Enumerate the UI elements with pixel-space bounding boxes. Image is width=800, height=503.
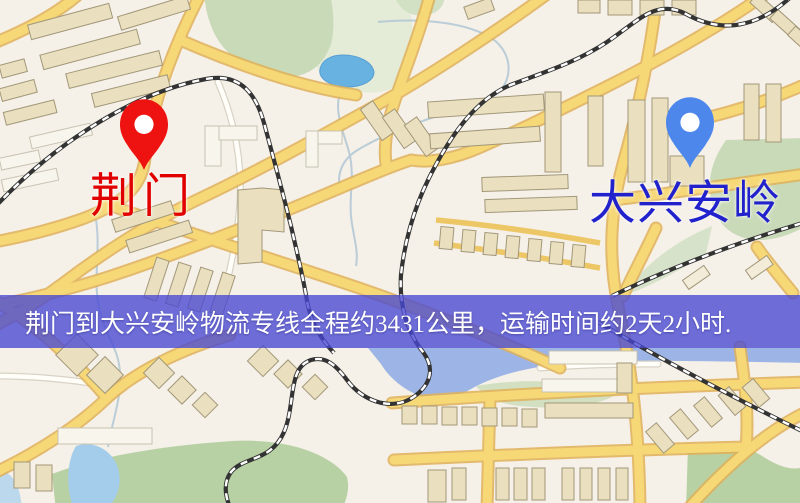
logistics-route-map: 荆门 大兴安岭 荆门到大兴安岭物流专线全程约3431公里，运输时间约2天2小时.: [0, 0, 800, 503]
route-info-banner: 荆门到大兴安岭物流专线全程约3431公里，运输时间约2天2小时.: [0, 295, 800, 348]
route-info-text: 荆门到大兴安岭物流专线全程约3431公里，运输时间约2天2小时.: [0, 304, 731, 340]
map-image: [0, 0, 800, 503]
